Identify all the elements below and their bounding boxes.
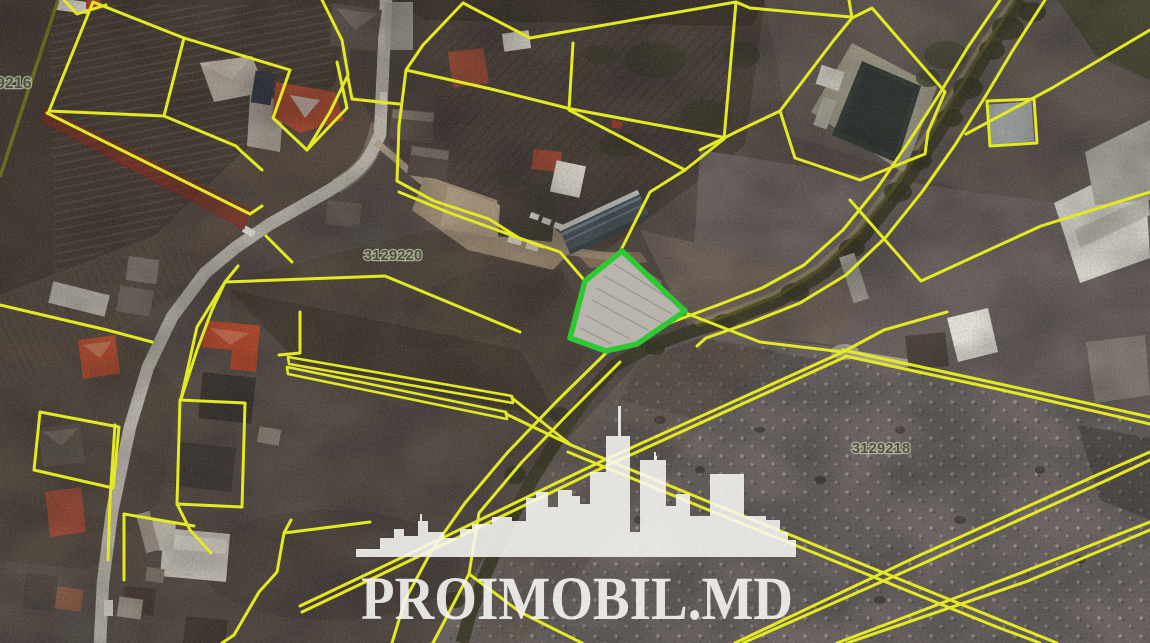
svg-text:3129218: 3129218 [852,440,910,457]
svg-text:3129220: 3129220 [364,247,422,264]
svg-text:9216: 9216 [0,75,32,92]
svg-text:PROIMOBIL.MD: PROIMOBIL.MD [361,566,793,633]
